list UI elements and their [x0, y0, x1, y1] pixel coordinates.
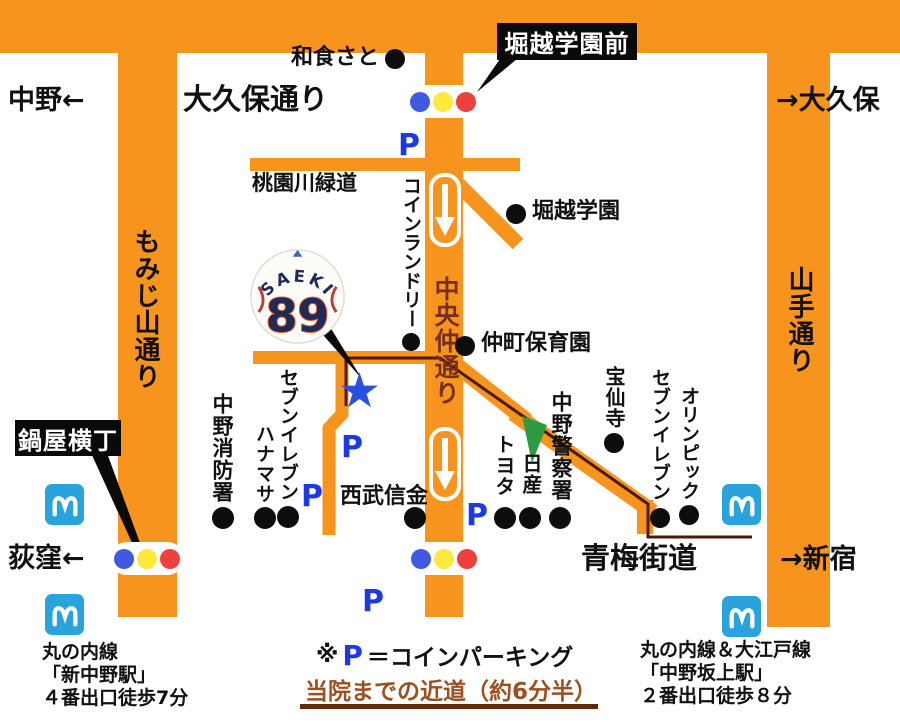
sign-momijiyama-dori: もみじ山通り — [132, 228, 158, 390]
poi-toyota: トヨタ — [494, 434, 514, 497]
poi-dot — [494, 507, 516, 529]
traffic-light-icon — [110, 542, 184, 575]
poi-seven-eleven-west: セブンイレブン — [278, 368, 297, 501]
poi-washoku-sato: 和食さと — [291, 46, 379, 69]
poi-horikoshi-gakuen: 堀越学園 — [532, 200, 620, 223]
poi-nakamachi-hoikuen: 仲町保育園 — [481, 332, 591, 355]
sign-okubo-dori: 大久保通り — [183, 84, 328, 114]
station-shin-nakano: 丸の内線 「新中野駅」 ４番出口徒歩7分 — [42, 641, 188, 711]
station-nakano-sakaue: 丸の内線＆大江戸線 「中野坂上駅」 ２番出口徒歩８分 — [640, 639, 811, 709]
parking-icon: P — [398, 131, 420, 161]
station-name: 「新中野駅」 — [42, 664, 188, 687]
poi-seven-eleven-east: セブンイレブン — [650, 368, 669, 501]
callout-label: 堀越学園前 — [505, 24, 630, 59]
poi-dot — [455, 336, 475, 356]
sign-yamate-dori: 山手通り — [786, 266, 812, 374]
poi-nakano-fire: 中野消防署 — [211, 393, 232, 503]
poi-dot — [402, 333, 420, 351]
shortcut-underline — [300, 704, 598, 709]
cap-number: 89 — [266, 289, 329, 342]
traffic-light-icon — [406, 85, 480, 118]
poi-nakano-police: 中野警察署 — [550, 391, 571, 501]
one-way-arrow-icon — [429, 173, 461, 247]
parking-legend: ※ P ＝コインパーキング — [316, 638, 573, 672]
sign-ogikubo-west: 荻窪← — [8, 545, 85, 573]
poi-hanamasa: ハナマサ — [254, 424, 273, 504]
tokyo-metro-icon — [45, 484, 84, 525]
parking-icon: P — [341, 433, 363, 463]
traffic-light-icon — [407, 542, 481, 575]
parking-icon: P — [301, 482, 323, 512]
tokyo-metro-icon — [722, 596, 761, 637]
shortcut-note: 当院までの近道（約6分半） — [305, 672, 597, 706]
station-name: 「中野坂上駅」 — [640, 662, 811, 685]
road-momozonogawa-ryokudo — [250, 158, 520, 171]
poi-dot — [385, 49, 405, 69]
poi-dot — [650, 508, 670, 528]
sign-nakano-west: 中野← — [8, 87, 85, 115]
sign-okubo-east: →大久保 — [776, 87, 880, 115]
sign-shinjuku-east: →新宿 — [780, 546, 857, 574]
station-line: 丸の内線 — [42, 641, 188, 664]
legend-prefix: ※ — [316, 642, 338, 668]
sign-momozonogawa: 桃園川緑道 — [252, 172, 357, 194]
callout-nabeya-yokocho: 鍋屋横丁 — [15, 420, 121, 456]
poi-dot — [506, 204, 526, 224]
parking-icon: P — [342, 639, 363, 672]
poi-dot — [519, 507, 541, 529]
poi-olympic: オリンピック — [679, 386, 698, 500]
tokyo-metro-icon — [722, 484, 761, 525]
poi-seibu-shinkin: 西武信金 — [340, 485, 428, 508]
station-walk: ２番出口徒歩８分 — [640, 685, 811, 708]
poi-dot — [404, 507, 426, 529]
access-map: P P P P P ★ SAEKI 89 堀越学園前 鍋屋横丁 中野← 大久保通… — [0, 0, 900, 722]
poi-dot — [549, 507, 571, 529]
callout-horikoshi-gakuen-mae: 堀越学園前 — [497, 23, 637, 60]
parking-icon: P — [362, 587, 384, 617]
station-line: 丸の内線＆大江戸線 — [640, 639, 811, 662]
legend-suffix: ＝コインパーキング — [367, 638, 573, 672]
one-way-arrow-icon — [429, 427, 461, 501]
poi-coin-laundry: コインランドリー — [401, 176, 420, 328]
poi-dot — [277, 506, 299, 528]
poi-dot — [604, 433, 624, 453]
horikoshi-callout-pointer — [477, 59, 517, 92]
sign-chuo-naka-dori: 中央仲通り — [433, 276, 458, 406]
sign-ome-kaido: 青梅街道 — [581, 543, 697, 573]
parking-icon: P — [466, 501, 488, 531]
poi-dot — [212, 507, 234, 529]
poi-dot — [679, 505, 699, 525]
callout-label: 鍋屋横丁 — [18, 421, 118, 456]
poi-nissan: 日産 — [521, 453, 541, 495]
station-walk: ４番出口徒歩7分 — [42, 687, 188, 710]
saeki-89-cap: SAEKI 89 — [249, 248, 346, 345]
poi-hosenji: 宝仙寺 — [604, 366, 624, 429]
tokyo-metro-icon — [45, 594, 84, 635]
clinic-star-icon: ★ — [338, 367, 381, 415]
poi-dot — [254, 507, 276, 529]
